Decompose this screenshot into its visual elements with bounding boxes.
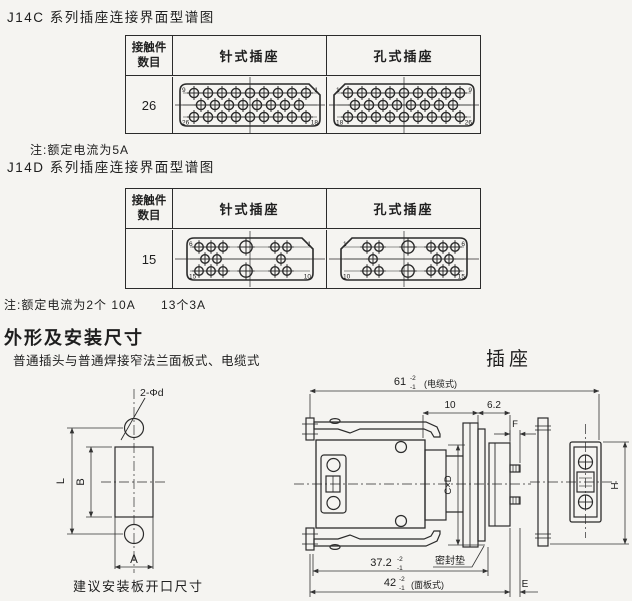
top-latch-arm: [314, 422, 440, 437]
j14d-table: 接触件 数目 针式插座 孔式插座 15 611510 161015: [125, 188, 481, 289]
contact-number-bl: 10: [343, 274, 351, 281]
j14c-table: 接触件 数目 针式插座 孔式插座 26 912618 191826: [125, 35, 481, 134]
pin-header-cell: 针式插座: [173, 189, 327, 229]
dim-F-label: F: [512, 419, 518, 430]
contacts-header-cell: 接触件 数目: [126, 189, 173, 229]
dim-H-label: H: [610, 482, 621, 489]
contact-number-bl: 26: [182, 120, 190, 127]
socket-dimension-labels: 61 -2 -1 (电缆式) 10 6.2 F C×D H 37.2 -2 -1…: [370, 375, 621, 592]
socket-header-cell: 孔式插座: [327, 189, 480, 229]
plate-dimension-lines: [67, 428, 153, 567]
dim-42-suffix: (面板式): [411, 579, 444, 590]
contact-number-bl: 15: [189, 274, 197, 281]
dim-61-upper-tol: -2: [410, 375, 416, 382]
pin-header-cell: 针式插座: [173, 36, 327, 76]
dim-37.2-value: 37.2: [370, 557, 391, 569]
dim-6.2-label: 6.2: [487, 400, 501, 411]
contact-number-tr: 1: [307, 241, 311, 248]
contacts-header-line2: 数目: [132, 56, 167, 70]
j14d-section-title: J14D 系列插座连接界面型谱图: [7, 156, 215, 176]
seal-gasket-label: 密封垫: [435, 554, 465, 567]
socket-header-cell: 孔式插座: [327, 36, 480, 76]
dim-L-label: L: [55, 478, 67, 484]
socket-flange: [463, 423, 478, 547]
j14d-socket-face-figure: 161015: [329, 231, 479, 287]
contact-number-tl: 9: [182, 87, 186, 94]
dim-61-value: 61: [394, 376, 406, 388]
j14d-contact-count: 15: [126, 230, 173, 288]
contacts-header-line2: 数目: [132, 209, 167, 223]
contact-number-tl: 1: [343, 241, 347, 248]
dim-61-suffix: (电缆式): [424, 378, 457, 389]
bottom-latch-arm: [314, 531, 440, 546]
dim-E-label: E: [522, 579, 529, 590]
dim-42-upper-tol: -2: [399, 576, 405, 583]
contact-number-br: 26: [465, 120, 473, 127]
contact-number-br: 18: [311, 120, 319, 127]
j14c-pin-face-figure: 912618: [175, 77, 325, 133]
mounting-panel: [489, 443, 510, 526]
contact-number-tl: 1: [336, 87, 340, 94]
j14c-contact-count: 26: [126, 77, 173, 133]
j14d-note: 注:额定电流为2个 10A 13个3A: [4, 296, 206, 313]
dim-A-label: A: [130, 554, 138, 566]
mounting-plate-drawing: 2-Φd L B A: [55, 383, 290, 578]
dim-37.2-lower-tol: -1: [397, 565, 403, 572]
dim-B-label: B: [75, 478, 87, 485]
dim-10-label: 10: [444, 400, 456, 411]
contact-number-tr: 6: [461, 241, 465, 248]
contact-number-tr: 9: [468, 87, 472, 94]
socket-front-view: [530, 418, 620, 546]
dim-CxD-label: C×D: [443, 475, 454, 494]
contact-number-br: 15: [458, 274, 466, 281]
socket-side-view: [294, 418, 531, 550]
contacts-header-cell: 接触件 数目: [126, 36, 173, 76]
j14c-section-title: J14C 系列插座连接界面型谱图: [7, 6, 215, 26]
contact-number-bl: 18: [336, 120, 344, 127]
j14d-pin-face-figure: 611510: [175, 231, 325, 287]
dim-42-lower-tol: -1: [399, 585, 405, 592]
contact-number-br: 10: [304, 274, 312, 281]
dim-61-lower-tol: -1: [410, 384, 416, 391]
dim-37.2-upper-tol: -2: [397, 556, 403, 563]
socket-outline-drawing: 61 -2 -1 (电缆式) 10 6.2 F C×D H 37.2 -2 -1…: [288, 366, 632, 601]
catalog-page: J14C 系列插座连接界面型谱图 接触件 数目 针式插座 孔式插座 26 912…: [0, 0, 632, 601]
seal-gasket: [478, 429, 485, 541]
contact-number-tl: 6: [189, 241, 193, 248]
contacts-header-line1: 接触件: [132, 194, 167, 208]
j14c-socket-face-figure: 191826: [329, 77, 479, 133]
outline-heading: 外形及安装尺寸: [4, 324, 144, 350]
dim-42-value: 42: [384, 577, 396, 589]
hole-diameter-callout: 2-Φd: [140, 387, 164, 399]
plate-caption: 建议安装板开口尺寸: [73, 576, 204, 595]
outline-subheading: 普通插头与普通焊接窄法兰面板式、电缆式: [13, 350, 260, 369]
contacts-header-line1: 接触件: [132, 41, 167, 55]
contact-number-tr: 1: [314, 87, 318, 94]
